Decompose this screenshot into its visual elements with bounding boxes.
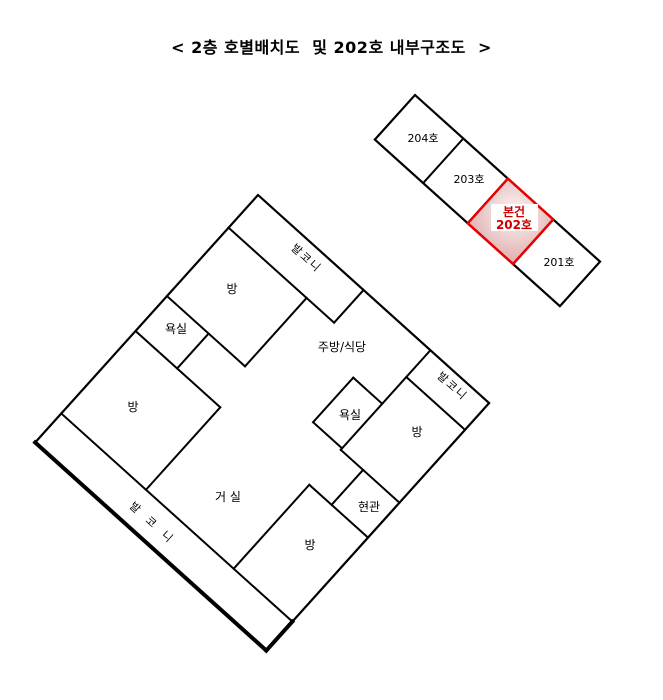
room-label-room-right: 방 [411,425,422,439]
wall [313,422,342,448]
wall [234,485,310,569]
wall [334,290,363,323]
room-label-room-top: 방 [226,282,237,296]
wall [177,334,208,369]
unit-label-204: 204호 [407,132,438,145]
room-label-balcony-top: 발코니 [288,241,324,275]
room-label-balcony-bottom: 발 코 니 [127,499,178,547]
wall [353,378,382,404]
wall [35,442,266,650]
room-label-kitchen-dining: 주방/식당 [318,340,366,354]
unit-strip [375,95,600,306]
unit-202-label-line2: 202호 [496,218,532,232]
unit-202-label-line1: 본건 [503,204,525,219]
room-label-room-bottom: 방 [304,538,315,552]
room-label-balcony-right: 발코니 [434,369,470,403]
room-label-room-left: 방 [127,400,138,414]
floor-plan-canvas: 204호 203호 본건 202호 201호 [0,0,663,700]
apartment-plan [35,195,489,651]
room-label-bath-right: 욕실 [339,408,361,422]
floor-plan-page: < 2층 호별배치도 및 202호 내부구조도 > 204호 203호 본건 2… [0,0,663,700]
room-label-living-room: 거 실 [215,490,241,504]
wall [341,450,400,503]
wall [136,331,221,407]
unit-label-201: 201호 [543,256,574,269]
room-label-entrance: 현관 [358,500,380,514]
wall [245,298,307,366]
plan-outline [35,195,489,651]
wall [266,622,292,651]
unit-label-203: 203호 [453,173,484,186]
wall [229,228,335,323]
wall [61,413,292,621]
wall [146,407,220,489]
room-label-bath-left: 욕실 [165,322,187,336]
